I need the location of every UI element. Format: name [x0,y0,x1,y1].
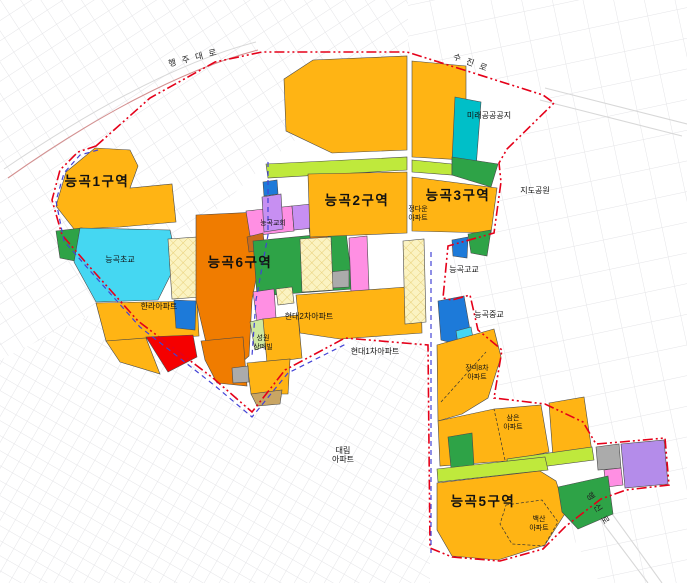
baeksan-label-2: 아파트 [529,523,549,532]
parcel-gray-2 [232,366,249,383]
parcel-amber-south [247,359,290,394]
zone6-label: 능곡6구역 [208,254,273,270]
parcel-pink-2 [349,236,369,292]
mirae-label: 미래공공공지 [467,111,511,120]
zone2-label: 능곡2구역 [325,192,390,208]
zone3-label: 능곡3구역 [426,187,491,203]
parcel-green-4 [448,433,474,468]
parcel-gray-3 [596,444,621,470]
parcel-zone2-north [284,56,407,153]
zone1-label: 능곡1구역 [65,173,130,189]
parcel-mirae [452,97,481,168]
parcel-green-3 [468,230,491,256]
elementary-label: 능곡초교 [105,255,134,264]
hyundai2-label: 현대2차아파트 [285,311,334,321]
parcel-hatched-3 [300,237,333,292]
parcel-purple [621,440,668,488]
jido-park-label: 지도공원 [520,186,549,195]
hanla-label: 한라아파트 [141,301,178,311]
parcel-hatched-2 [276,287,294,305]
middle-school-label: 능곡중교 [474,310,503,319]
zoning-map: 능곡1구역 능곡2구역 능곡3구역 능곡5구역 능곡6구역 미래공공공지 지도공… [0,0,687,583]
baeksan-label-1: 백산 [533,514,546,523]
parcel-blue-3 [452,237,468,258]
church-label: 능곡교회 [260,219,286,227]
jeongdawoon-label-1: 정다운 [408,204,428,213]
sungwon-label-1: 성원 [257,333,270,342]
sameun-label-1: 삼은 [507,413,520,422]
daerim-label-1: 대림 [336,445,351,455]
map-canvas: 능곡1구역 능곡2구역 능곡3구역 능곡5구역 능곡6구역 미래공공공지 지도공… [0,0,687,583]
zone5-label: 능곡5구역 [451,493,516,509]
parcel-hatched-4 [403,239,426,324]
high-school-label: 능곡고교 [449,265,478,274]
jangmi-label-2: 아파트 [467,372,487,381]
hyundai1-label: 현대1차아파트 [351,346,400,356]
jeongdawoon-label-2: 아파트 [408,213,428,222]
parcel-blue-2 [263,180,278,196]
parcel-pink-3 [253,289,276,321]
jangmi-label-1: 장미8차 [465,363,489,372]
sameun-label-2: 아파트 [503,422,523,431]
sungwon-label-2: 상떼빌 [253,342,272,351]
daerim-label-2: 아파트 [332,454,354,464]
